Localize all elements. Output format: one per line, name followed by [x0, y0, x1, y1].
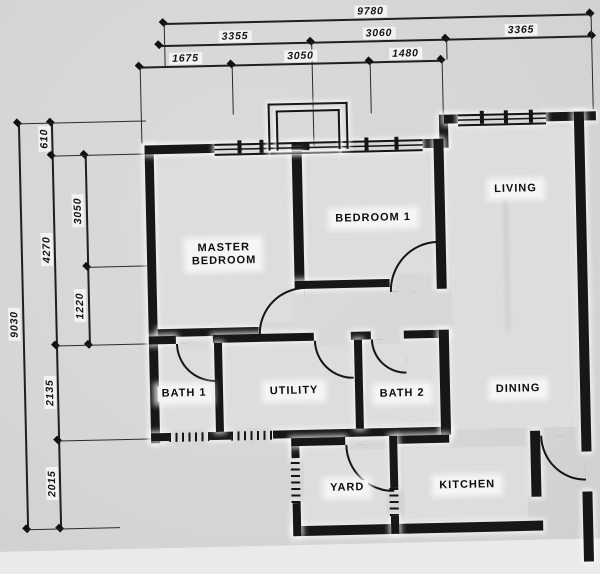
- dim-label-overall-width: 9780: [354, 5, 387, 18]
- room-label-living: LIVING: [490, 181, 541, 197]
- dim-label-top-segment: 3355: [219, 30, 252, 43]
- wall-bath2-right: [439, 330, 451, 435]
- wall-bath-row-bottom: [151, 433, 169, 441]
- room-label-yard: YARD: [326, 480, 369, 496]
- floorplan-photo: 9780 3355 3060 3365 1675 3050 1480 9030 …: [0, 0, 600, 574]
- dim-label-overall-height: 9030: [8, 308, 21, 341]
- room-label-line: BEDROOM: [192, 254, 257, 268]
- door-arc-dining-balcony: [540, 435, 586, 482]
- dim-label-top-segment: 1480: [389, 47, 422, 60]
- extension-line: [27, 527, 120, 531]
- room-label-dining: DINING: [492, 381, 545, 397]
- extension-line: [56, 343, 151, 347]
- extension-line: [232, 64, 235, 114]
- window-mullion: [504, 110, 508, 123]
- wall-right-exterior-lower: [582, 491, 594, 561]
- wall-bottom-exterior: [293, 521, 543, 537]
- wall-bath-row-top: [149, 336, 176, 345]
- diamond-marker: [154, 40, 163, 49]
- louvre-window-utility: [231, 431, 273, 441]
- window-mullion: [529, 110, 533, 123]
- louvre-window-bath1: [169, 432, 209, 442]
- extension-line: [140, 67, 143, 144]
- room-label-kitchen: KITCHEN: [435, 477, 499, 493]
- louvre-window-yard: [291, 458, 301, 503]
- bay-window-inner: [276, 109, 341, 150]
- dim-label-left-segment: 2015: [46, 467, 59, 500]
- window-mullion: [364, 137, 368, 150]
- extension-line: [52, 153, 147, 157]
- dim-label-top-segment: 1675: [169, 52, 202, 65]
- wall-kitchen-top: [397, 435, 449, 444]
- wall-bath-row-bottom: [209, 432, 231, 440]
- window-mullion: [480, 111, 484, 124]
- wall-yard-kitchen-divider: [391, 516, 399, 534]
- dim-label-top-segment: 3060: [363, 27, 396, 40]
- wall-living-top-pier: [444, 114, 458, 123]
- wall-utility-bath2-divider: [354, 340, 364, 429]
- dim-label-left-segment: 4270: [40, 233, 53, 266]
- wall-yard-top: [291, 437, 345, 446]
- extension-line: [442, 60, 445, 120]
- dim-label-top-segment: 3050: [284, 50, 317, 63]
- extension-line: [446, 39, 448, 60]
- wall-top-pier: [144, 144, 214, 155]
- room-label-bath1: BATH 1: [157, 386, 210, 402]
- dim-label-top-segment: 3365: [505, 24, 538, 37]
- extension-line: [370, 61, 373, 113]
- window-bedroom1: [341, 139, 422, 153]
- room-label-bath2: BATH 2: [376, 386, 429, 402]
- extension-line: [58, 438, 153, 442]
- wall-yard-left: [293, 503, 302, 536]
- dim-label-left-segment: 1220: [74, 290, 87, 323]
- window-mullion: [394, 137, 398, 150]
- extension-line: [591, 13, 595, 109]
- wall-bath-row-top: [351, 331, 371, 339]
- paper-edge-band: [0, 537, 600, 574]
- wall-bedroom1-south: [295, 279, 390, 289]
- dim-label-left-segment: 2135: [44, 376, 57, 409]
- wall-master-bedroom1-divider: [292, 151, 305, 288]
- wall-right-exterior: [574, 112, 592, 452]
- window-mullion: [259, 140, 263, 153]
- dim-label-left-segment: 3050: [72, 195, 85, 228]
- wall-living-top-pier: [546, 111, 596, 121]
- wall-bath1-utility-divider: [214, 343, 224, 432]
- room-label-utility: UTILITY: [266, 383, 323, 399]
- extension-line: [18, 120, 146, 124]
- floorplan-drawing: 9780 3355 3060 3365 1675 3050 1480 9030 …: [0, 0, 600, 574]
- room-label-master-bedroom: MASTER BEDROOM: [187, 240, 260, 270]
- window-mullion: [237, 140, 241, 153]
- louvre-window-yard-divider: [389, 488, 399, 516]
- extension-line: [87, 265, 149, 268]
- room-label-bedroom1: BEDROOM 1: [331, 210, 415, 227]
- dim-label-left-segment: 610: [38, 126, 51, 152]
